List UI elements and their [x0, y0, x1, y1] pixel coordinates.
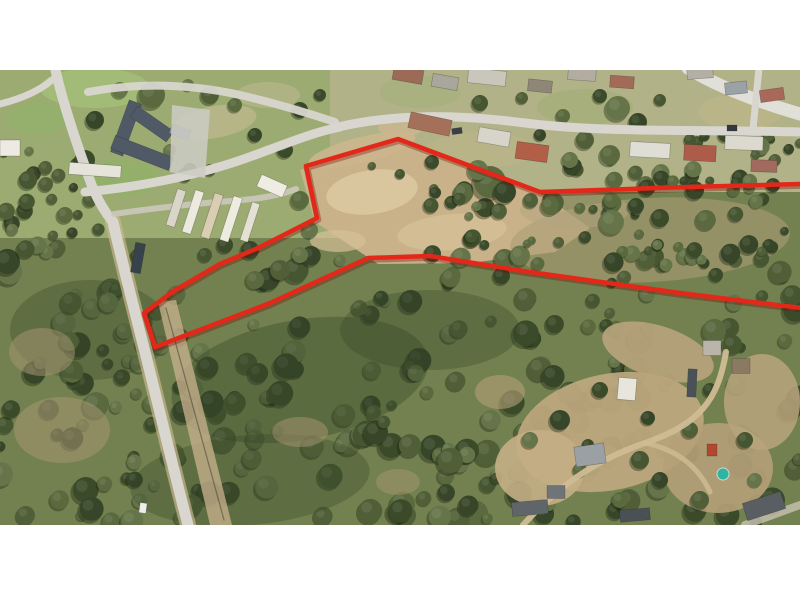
red-shed: [707, 444, 717, 456]
listing-photo: [0, 0, 800, 600]
house-13: [630, 141, 671, 158]
rv-camper: [687, 369, 697, 397]
white-trailer-southeast: [617, 377, 637, 400]
house-14: [684, 144, 717, 162]
metal-roof-house: [574, 443, 606, 467]
house-6: [610, 75, 635, 89]
house-bottom-3: [620, 508, 651, 523]
house-16: [751, 160, 777, 173]
top-white-band: [0, 0, 800, 70]
house-15: [725, 135, 763, 150]
car-dark-1: [452, 127, 463, 134]
car-dark-2: [727, 125, 737, 131]
house-bottom-1: [511, 499, 548, 516]
house-8: [724, 81, 747, 95]
school-parking-lot: [170, 105, 210, 178]
house-4: [527, 79, 552, 93]
pool: [717, 468, 729, 480]
car-white: [139, 503, 147, 514]
shed-1: [547, 486, 565, 499]
bottom-white-band: [0, 525, 800, 600]
shed-far-left: [0, 140, 20, 156]
shed-3: [732, 359, 750, 374]
aerial-photo-canvas: [0, 0, 800, 600]
shed-2: [703, 341, 721, 356]
